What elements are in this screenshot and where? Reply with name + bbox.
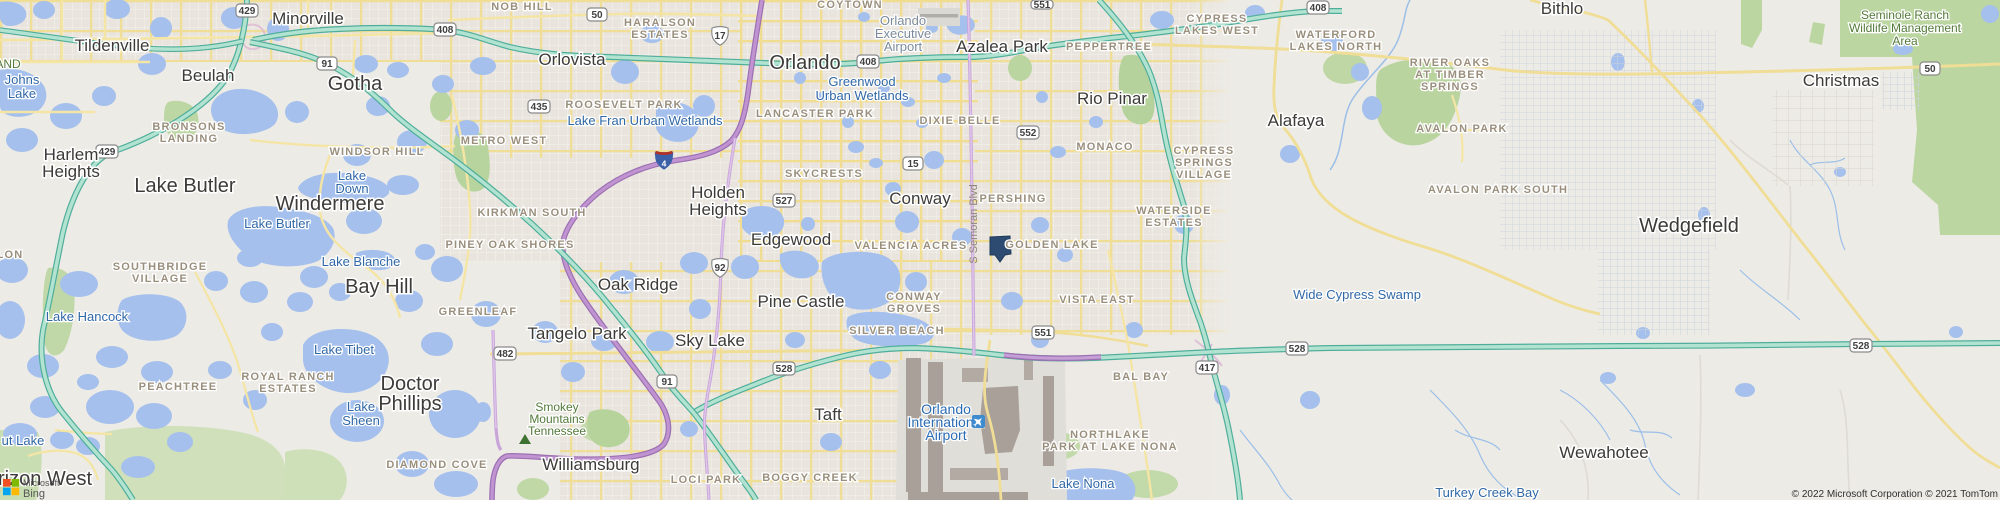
svg-text:408: 408 — [860, 57, 877, 68]
svg-text:Lake Fran Urban Wetlands: Lake Fran Urban Wetlands — [567, 113, 723, 128]
svg-text:Christmas: Christmas — [1803, 71, 1880, 90]
svg-text:ESTATES: ESTATES — [259, 383, 317, 395]
svg-text:LOCI PARK: LOCI PARK — [671, 474, 741, 486]
svg-text:Heights: Heights — [42, 162, 100, 181]
svg-text:Rio Pinar: Rio Pinar — [1077, 89, 1147, 108]
svg-text:SPRINGS: SPRINGS — [1175, 157, 1233, 169]
svg-text:BRONSONS: BRONSONS — [152, 121, 225, 133]
svg-text:Orlando: Orlando — [769, 52, 840, 74]
svg-text:NOB HILL: NOB HILL — [491, 1, 553, 13]
svg-text:LAKES WEST: LAKES WEST — [1175, 25, 1259, 37]
svg-text:Greenwood: Greenwood — [828, 74, 895, 89]
svg-text:Lake Nona: Lake Nona — [1052, 476, 1116, 491]
svg-text:91: 91 — [661, 377, 673, 388]
svg-text:WATERSIDE: WATERSIDE — [1136, 205, 1211, 217]
svg-text:AVALON PARK SOUTH: AVALON PARK SOUTH — [1428, 184, 1568, 196]
svg-text:BOGGY CREEK: BOGGY CREEK — [762, 472, 858, 484]
svg-text:S Semoran Blvd: S Semoran Blvd — [968, 184, 980, 263]
svg-text:Johns: Johns — [5, 72, 40, 87]
svg-text:Wildlife Management: Wildlife Management — [1849, 21, 1962, 35]
svg-text:Conway: Conway — [889, 189, 951, 208]
svg-text:ESTATES: ESTATES — [1145, 217, 1203, 229]
svg-text:VISTA EAST: VISTA EAST — [1059, 294, 1135, 306]
svg-text:50: 50 — [1924, 64, 1936, 75]
svg-text:SOUTHBRIDGE: SOUTHBRIDGE — [113, 261, 207, 273]
svg-text:Doctor: Doctor — [381, 373, 440, 395]
svg-text:4: 4 — [662, 159, 667, 169]
svg-text:527: 527 — [776, 196, 793, 207]
svg-text:Microsoft: Microsoft — [23, 478, 60, 488]
svg-text:GOLDEN LAKE: GOLDEN LAKE — [1005, 239, 1098, 251]
svg-text:GROVES: GROVES — [887, 303, 941, 315]
svg-text:417: 417 — [1199, 363, 1216, 374]
svg-text:DIXIE BELLE: DIXIE BELLE — [919, 115, 1000, 127]
svg-text:CONWAY: CONWAY — [886, 291, 942, 303]
svg-text:WATERFORD: WATERFORD — [1296, 29, 1377, 41]
svg-text:Bithlo: Bithlo — [1541, 0, 1584, 18]
svg-text:Area: Area — [1892, 34, 1918, 48]
svg-text:Airport: Airport — [925, 427, 966, 443]
svg-text:Turkey Creek Bay: Turkey Creek Bay — [1435, 485, 1539, 500]
svg-text:Lake Tibet: Lake Tibet — [314, 342, 374, 357]
svg-text:ROOSEVELT PARK: ROOSEVELT PARK — [565, 99, 682, 111]
svg-text:© 2022 Microsoft Corporation ©: © 2022 Microsoft Corporation © 2021 TomT… — [1792, 489, 1998, 500]
svg-text:SILVER BEACH: SILVER BEACH — [849, 325, 944, 337]
svg-text:BAL BAY: BAL BAY — [1113, 371, 1169, 383]
svg-text:528: 528 — [1289, 344, 1306, 355]
svg-text:Wedgefield: Wedgefield — [1639, 215, 1739, 237]
svg-text:Heights: Heights — [689, 200, 747, 219]
svg-text:551: 551 — [1035, 328, 1052, 339]
svg-text:Pine Castle: Pine Castle — [758, 292, 845, 311]
svg-text:PERSHING: PERSHING — [979, 193, 1046, 205]
svg-text:Orlovista: Orlovista — [538, 50, 606, 69]
svg-text:PEACHTREE: PEACHTREE — [139, 381, 218, 393]
svg-text:Wewahotee: Wewahotee — [1559, 443, 1648, 462]
svg-text:435: 435 — [531, 102, 548, 113]
svg-text:Phillips: Phillips — [378, 393, 441, 415]
svg-text:Taft: Taft — [814, 405, 842, 424]
svg-text:GREENLEAF: GREENLEAF — [439, 306, 518, 318]
svg-text:Azalea Park: Azalea Park — [956, 37, 1048, 56]
svg-text:Lake Blanche: Lake Blanche — [322, 254, 401, 269]
svg-text:HARALSON: HARALSON — [624, 17, 696, 29]
svg-text:LON: LON — [0, 249, 23, 261]
svg-text:COYTOWN: COYTOWN — [817, 0, 883, 11]
svg-text:VILLAGE: VILLAGE — [132, 273, 188, 285]
svg-text:Wide Cypress Swamp: Wide Cypress Swamp — [1293, 287, 1421, 302]
svg-text:NORTHLAKE: NORTHLAKE — [1070, 429, 1150, 441]
svg-text:VALENCIA ACRES: VALENCIA ACRES — [855, 240, 968, 252]
svg-text:SPRINGS: SPRINGS — [1421, 81, 1479, 93]
svg-text:PARK AT LAKE NONA: PARK AT LAKE NONA — [1042, 441, 1178, 453]
svg-text:Airport: Airport — [884, 39, 923, 54]
svg-text:CYPRESS: CYPRESS — [1187, 13, 1248, 25]
svg-text:ut Lake: ut Lake — [2, 433, 45, 448]
svg-text:VILLAGE: VILLAGE — [1176, 169, 1232, 181]
svg-text:Windermere: Windermere — [276, 193, 385, 215]
svg-text:METRO WEST: METRO WEST — [461, 135, 548, 147]
svg-text:ESTATES: ESTATES — [631, 29, 689, 41]
svg-text:551: 551 — [1034, 0, 1051, 11]
svg-text:Lake Hancock: Lake Hancock — [46, 309, 129, 324]
svg-text:AVALON PARK: AVALON PARK — [1416, 123, 1507, 135]
svg-text:408: 408 — [437, 25, 454, 36]
svg-text:Oak Ridge: Oak Ridge — [598, 275, 678, 294]
svg-text:Bing: Bing — [23, 488, 45, 500]
svg-text:15: 15 — [907, 159, 919, 170]
svg-text:Tennessee: Tennessee — [528, 424, 586, 438]
svg-text:17: 17 — [714, 31, 726, 42]
svg-text:Lake: Lake — [8, 86, 36, 101]
svg-text:Alafaya: Alafaya — [1268, 111, 1325, 130]
svg-text:Williamsburg: Williamsburg — [542, 455, 639, 474]
svg-text:PEPPERTREE: PEPPERTREE — [1066, 41, 1152, 53]
svg-text:92: 92 — [714, 263, 726, 274]
svg-text:Lake: Lake — [347, 399, 375, 414]
svg-text:LANCASTER PARK: LANCASTER PARK — [756, 108, 874, 120]
svg-text:LAKES NORTH: LAKES NORTH — [1290, 41, 1383, 53]
svg-text:SKYCRESTS: SKYCRESTS — [785, 168, 863, 180]
svg-text:DIAMOND COVE: DIAMOND COVE — [386, 459, 487, 471]
svg-text:Urban Wetlands: Urban Wetlands — [816, 88, 909, 103]
svg-text:RIVER OAKS: RIVER OAKS — [1410, 57, 1490, 69]
svg-text:Lake Butler: Lake Butler — [134, 175, 236, 197]
svg-text:Edgewood: Edgewood — [751, 230, 831, 249]
svg-text:91: 91 — [321, 59, 333, 70]
svg-text:408: 408 — [1310, 3, 1327, 14]
svg-text:KIRKMAN SOUTH: KIRKMAN SOUTH — [477, 207, 586, 219]
svg-text:Lake Butler: Lake Butler — [244, 216, 310, 231]
svg-text:Beulah: Beulah — [182, 66, 235, 85]
svg-text:Sheen: Sheen — [342, 413, 380, 428]
svg-text:Bay Hill: Bay Hill — [345, 276, 413, 298]
svg-text:LANDING: LANDING — [160, 133, 219, 145]
svg-text:429: 429 — [99, 147, 116, 158]
svg-text:Seminole Ranch: Seminole Ranch — [1861, 8, 1949, 22]
svg-text:Sky Lake: Sky Lake — [675, 331, 745, 350]
svg-text:429: 429 — [239, 6, 256, 17]
svg-text:WINDSOR HILL: WINDSOR HILL — [329, 146, 424, 158]
svg-text:AND: AND — [0, 57, 21, 71]
svg-text:552: 552 — [1020, 128, 1037, 139]
svg-text:Tangelo Park: Tangelo Park — [527, 324, 627, 343]
svg-text:50: 50 — [591, 10, 603, 21]
svg-text:Gotha: Gotha — [328, 73, 383, 95]
svg-text:Tildenville: Tildenville — [75, 36, 150, 55]
svg-text:528: 528 — [1853, 341, 1870, 352]
svg-text:Minorville: Minorville — [272, 9, 344, 28]
svg-text:ROYAL RANCH: ROYAL RANCH — [241, 371, 334, 383]
svg-text:AT TIMBER: AT TIMBER — [1415, 69, 1485, 81]
svg-text:PINEY OAK SHORES: PINEY OAK SHORES — [445, 239, 574, 251]
svg-text:482: 482 — [497, 349, 514, 360]
svg-text:MONACO: MONACO — [1076, 141, 1133, 153]
svg-text:528: 528 — [776, 364, 793, 375]
svg-text:CYPRESS: CYPRESS — [1174, 145, 1235, 157]
